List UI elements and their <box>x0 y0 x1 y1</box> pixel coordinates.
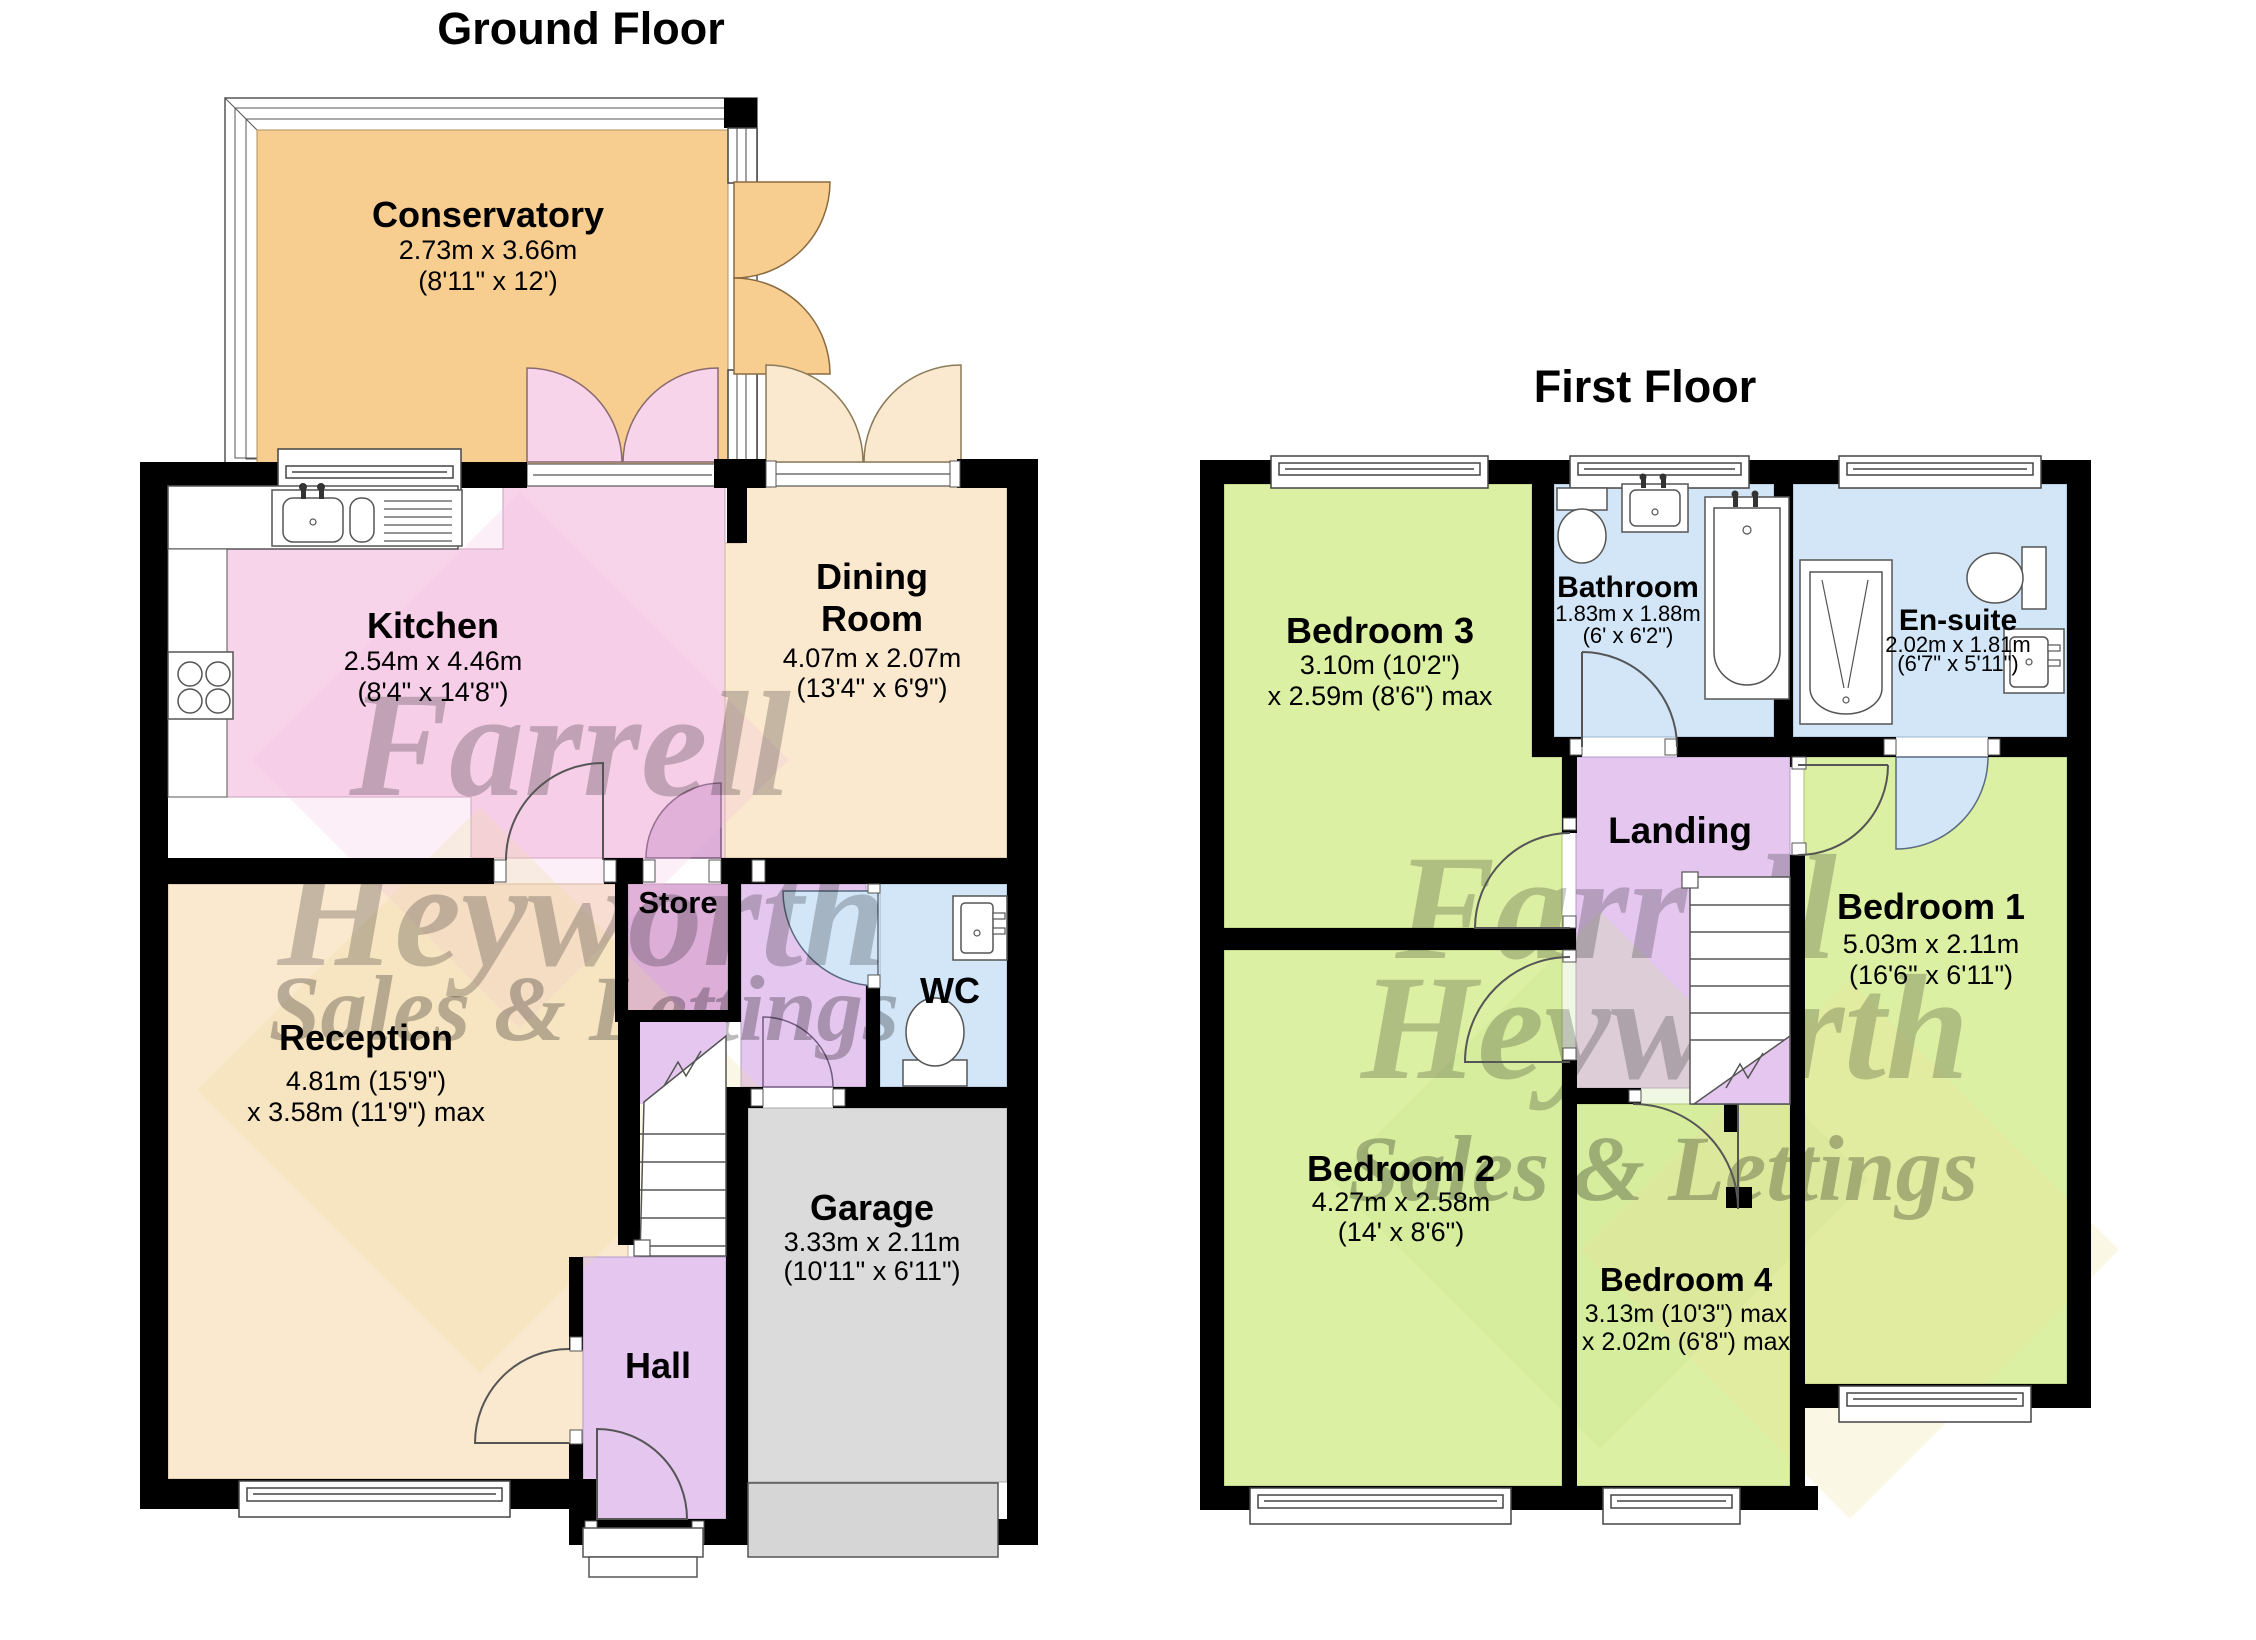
svg-text:3.13m (10'3") max: 3.13m (10'3") max <box>1585 1300 1788 1328</box>
svg-text:Bedroom 1: Bedroom 1 <box>1837 886 2025 927</box>
svg-text:x 2.59m (8'6") max: x 2.59m (8'6") max <box>1268 681 1493 711</box>
svg-text:WC: WC <box>920 970 980 1011</box>
svg-text:Room: Room <box>821 598 923 639</box>
svg-text:3.10m (10'2"): 3.10m (10'2") <box>1300 650 1460 680</box>
svg-text:4.81m (15'9"): 4.81m (15'9") <box>286 1066 446 1096</box>
svg-text:4.27m x 2.58m: 4.27m x 2.58m <box>1312 1187 1491 1217</box>
svg-text:x 2.02m (6'8") max: x 2.02m (6'8") max <box>1582 1328 1791 1356</box>
svg-text:(6' x 6'2"): (6' x 6'2") <box>1583 623 1674 648</box>
svg-text:x 3.58m (11'9") max: x 3.58m (11'9") max <box>247 1097 485 1127</box>
svg-text:Store: Store <box>638 885 717 920</box>
svg-text:Conservatory: Conservatory <box>372 194 604 235</box>
svg-text:Hall: Hall <box>625 1345 691 1386</box>
svg-text:Bathroom: Bathroom <box>1557 571 1699 604</box>
svg-text:Bedroom 2: Bedroom 2 <box>1307 1148 1495 1189</box>
svg-text:Reception: Reception <box>279 1017 453 1058</box>
svg-text:(16'6" x 6'11"): (16'6" x 6'11") <box>1849 960 2013 990</box>
svg-text:(8'4" x 14'8"): (8'4" x 14'8") <box>357 677 508 707</box>
svg-text:5.03m x 2.11m: 5.03m x 2.11m <box>1843 929 2020 959</box>
svg-text:(13'4" x 6'9"): (13'4" x 6'9") <box>796 673 947 703</box>
svg-text:Garage: Garage <box>810 1187 934 1228</box>
svg-text:2.54m x 4.46m: 2.54m x 4.46m <box>344 646 523 676</box>
svg-text:(14' x 8'6"): (14' x 8'6") <box>1338 1217 1464 1247</box>
svg-text:Dining: Dining <box>816 556 928 597</box>
svg-text:Ground Floor: Ground Floor <box>437 3 724 54</box>
svg-text:3.33m x 2.11m: 3.33m x 2.11m <box>784 1227 961 1257</box>
svg-text:(10'11" x 6'11"): (10'11" x 6'11") <box>783 1256 960 1286</box>
svg-text:4.07m x 2.07m: 4.07m x 2.07m <box>783 643 962 673</box>
svg-text:Bedroom 4: Bedroom 4 <box>1600 1261 1773 1298</box>
svg-text:Kitchen: Kitchen <box>367 605 499 646</box>
svg-text:(6'7" x 5'11"): (6'7" x 5'11") <box>1897 651 2018 676</box>
svg-text:Bedroom 3: Bedroom 3 <box>1286 610 1474 651</box>
svg-text:(8'11" x 12'): (8'11" x 12') <box>418 266 557 296</box>
svg-text:First Floor: First Floor <box>1534 361 1757 412</box>
svg-text:2.73m x 3.66m: 2.73m x 3.66m <box>399 235 578 265</box>
svg-text:Landing: Landing <box>1608 810 1752 851</box>
